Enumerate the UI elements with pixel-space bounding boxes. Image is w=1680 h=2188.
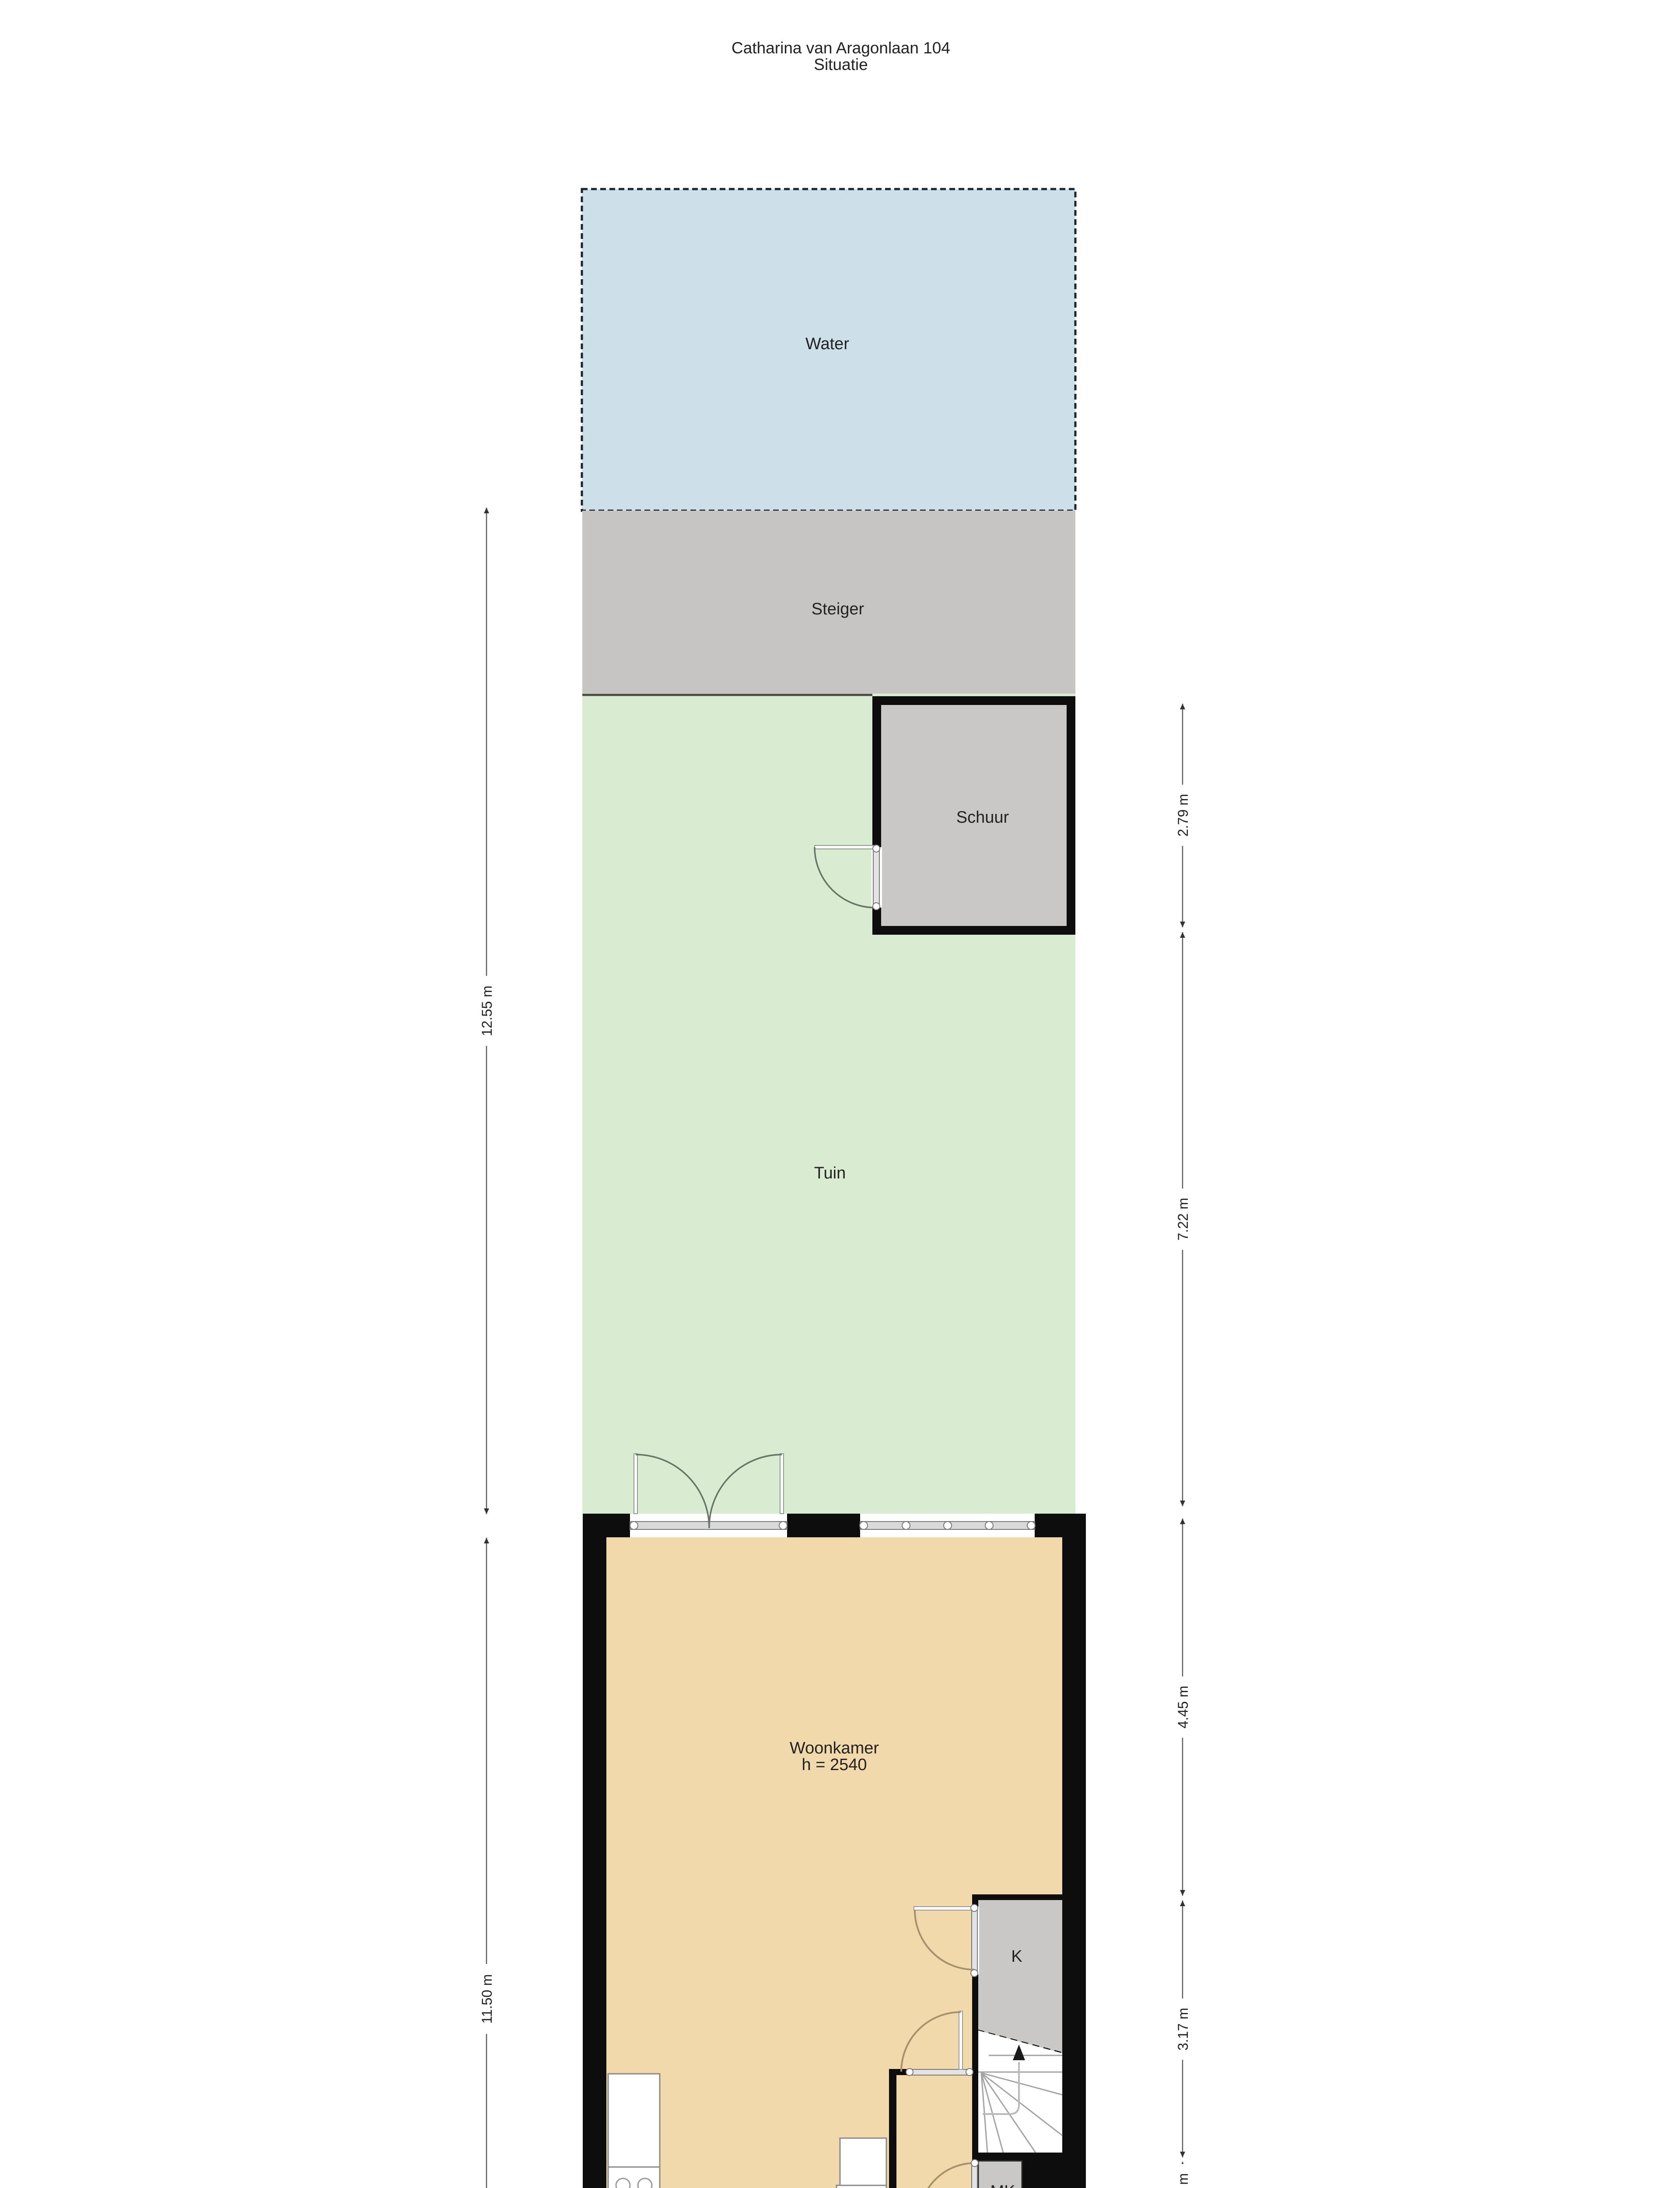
svg-text:Water: Water — [805, 335, 849, 353]
svg-text:2.79 m: 2.79 m — [1175, 794, 1191, 837]
svg-text:12.55 m: 12.55 m — [479, 985, 495, 1036]
svg-text:3.17 m: 3.17 m — [1175, 2008, 1191, 2051]
svg-text:4.45 m: 4.45 m — [1175, 1686, 1191, 1729]
svg-text:11.50 m: 11.50 m — [479, 1974, 495, 2023]
svg-text:7.22 m: 7.22 m — [1175, 1198, 1191, 1241]
svg-text:MK: MK — [990, 2182, 1015, 2188]
svg-text:Tuin: Tuin — [814, 1164, 846, 1182]
svg-text:Steiger: Steiger — [812, 600, 864, 618]
svg-text:h = 2540: h = 2540 — [802, 1756, 867, 1774]
svg-text:0.81 m: 0.81 m — [1175, 2173, 1191, 2188]
svg-text:K: K — [1011, 1947, 1022, 1966]
svg-text:Situatie: Situatie — [814, 56, 868, 74]
svg-text:Catharina van Aragonlaan 104: Catharina van Aragonlaan 104 — [731, 39, 950, 57]
svg-text:Schuur: Schuur — [956, 808, 1009, 827]
svg-text:Woonkamer: Woonkamer — [790, 1739, 879, 1757]
